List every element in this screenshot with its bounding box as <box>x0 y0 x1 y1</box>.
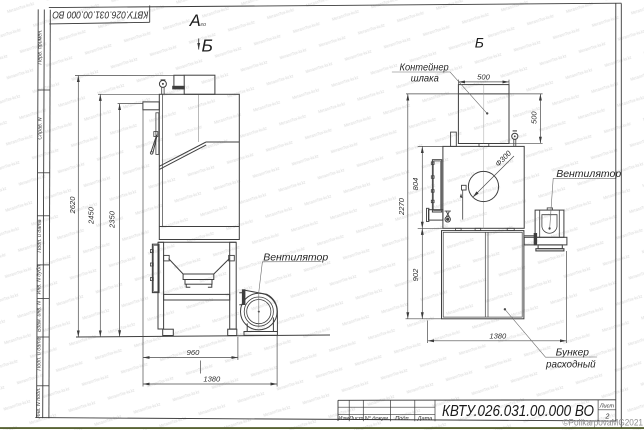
svg-text:Бункер: Бункер <box>556 347 590 359</box>
svg-text:Б: Б <box>202 35 213 55</box>
svg-text:го: го <box>200 22 206 28</box>
svg-text:902: 902 <box>411 268 420 281</box>
svg-text:А: А <box>189 12 201 30</box>
svg-text:Лист: Лист <box>599 403 615 409</box>
svg-text:Дата: Дата <box>417 416 433 422</box>
svg-text:Справ. N: Справ. N <box>37 117 43 139</box>
svg-text:N° докум.: N° докум. <box>365 416 390 422</box>
svg-text:Подп.: Подп. <box>395 416 410 422</box>
svg-text:Инв. N дубл.: Инв. N дубл. <box>37 264 43 295</box>
svg-text:Контейнер: Контейнер <box>400 61 449 73</box>
svg-text:Вентилятор: Вентилятор <box>556 168 621 180</box>
svg-text:500: 500 <box>530 111 539 124</box>
svg-text:шлака: шлака <box>411 73 439 85</box>
svg-text:1380: 1380 <box>203 375 221 384</box>
svg-text:Взам. инв. N: Взам. инв. N <box>37 301 43 332</box>
svg-text:Изм: Изм <box>338 416 349 422</box>
svg-text:КВТУ.026.031.00.000 ВО: КВТУ.026.031.00.000 ВО <box>52 9 148 21</box>
svg-text:Б: Б <box>475 35 484 51</box>
svg-text:©PolikarpovaMG2021: ©PolikarpovaMG2021 <box>563 417 644 427</box>
svg-text:Подп. и дата: Подп. и дата <box>37 219 43 252</box>
svg-text:804: 804 <box>411 178 420 191</box>
svg-text:1380: 1380 <box>489 331 507 340</box>
svg-text:2270: 2270 <box>397 197 406 216</box>
svg-text:расходный: расходный <box>545 358 596 370</box>
svg-text:Перв. примен.: Перв. примен. <box>38 29 44 64</box>
svg-text:960: 960 <box>187 348 200 357</box>
svg-text:Инв. N подл.: Инв. N подл. <box>36 388 42 419</box>
svg-text:2620: 2620 <box>68 196 77 215</box>
svg-text:2350: 2350 <box>108 210 117 229</box>
svg-text:500: 500 <box>477 73 490 82</box>
svg-text:Лист: Лист <box>348 416 364 422</box>
svg-text:Подп. и дата: Подп. и дата <box>36 337 42 370</box>
svg-text:2450: 2450 <box>86 206 95 225</box>
